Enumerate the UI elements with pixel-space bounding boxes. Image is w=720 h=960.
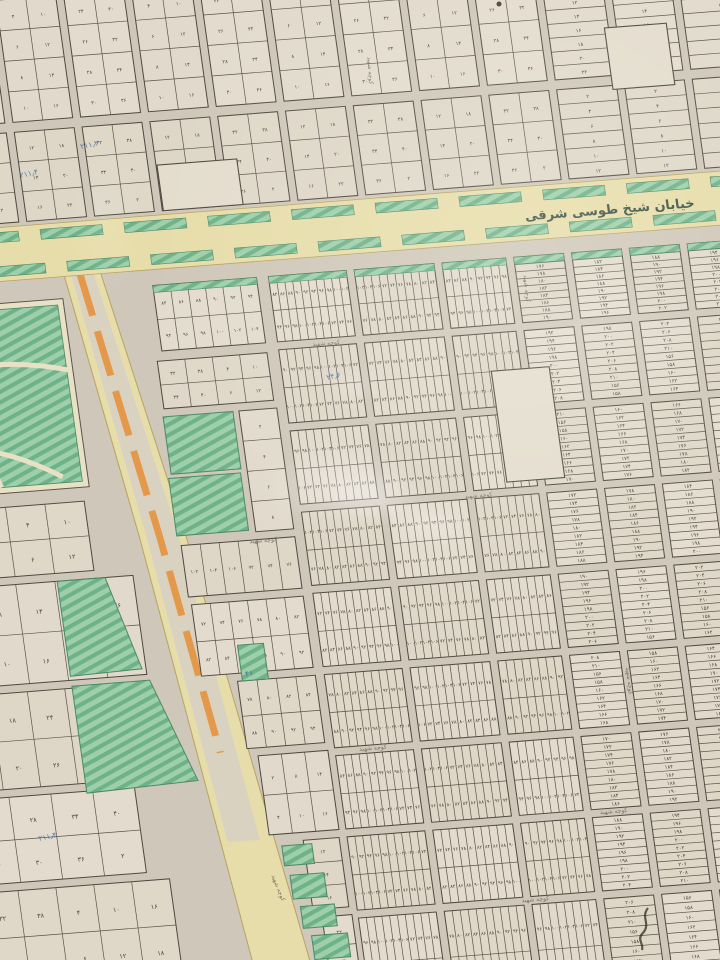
parcel-number: ۱۹۰ xyxy=(687,508,696,515)
parcel-number: ۱۶۲ xyxy=(687,925,696,932)
parcel-number: ۹۰ xyxy=(540,549,546,554)
parcel-number: ۱۸۲ xyxy=(681,467,690,474)
parcel-number: ۹۰ xyxy=(486,800,492,805)
parcel-number: ۱۲ xyxy=(663,163,670,169)
parcel-number: ۱۰۶ xyxy=(373,285,382,291)
parcel-number: ۱۹۰ xyxy=(632,537,641,544)
parcel-number: ۱۷۸ xyxy=(679,451,688,458)
parcel-number: ۸۰ xyxy=(469,846,475,851)
parcel-number: ۹۰ xyxy=(497,931,503,936)
parcel-number: ۱۸۰ xyxy=(680,459,689,466)
parcel-number: ۲۱۰ xyxy=(699,597,708,604)
city-block: ۳۲۳۴۳۶۳۸۴۰۲ xyxy=(353,101,425,195)
parcel-number: ۱۹۶ xyxy=(672,821,681,828)
parcel-number: ۱۰۰ xyxy=(513,880,521,886)
parcel-number: ۲۰۴ xyxy=(714,286,720,293)
parcel-number: ۲۰ xyxy=(63,173,69,179)
parcel-number: ۲۰۰ xyxy=(693,549,702,556)
parcel-number: ۸۰ xyxy=(388,442,394,447)
parcel-number: ۹۰ xyxy=(213,297,219,302)
parcel-number: ۱۰۶ xyxy=(401,938,410,944)
parcel-number: ۹۰ xyxy=(550,676,556,681)
city-block: ۱۰۲۷۶۱۰۴۷۸۱۰۶۸۰۷۲۸۲۷۴۸۴۷۶۸۶۷۸۸۸۸۰۹۰۸۲۹۲۸… xyxy=(301,506,389,585)
parcel-number: ۲۰۸ xyxy=(698,589,707,596)
parcel-number: ۱۹۶ xyxy=(690,532,699,539)
parcel-number: ۲۰۲ xyxy=(713,279,720,286)
empty-parcel xyxy=(157,159,243,211)
parcel-number: ۱۷۲ xyxy=(603,744,612,751)
parcel-number: ۱۰۲ xyxy=(233,327,242,334)
parcel-number: ۱۷۰ xyxy=(620,448,629,455)
parcel-number: ۱۰ xyxy=(40,12,46,18)
parcel-number: ۹۰ xyxy=(527,632,533,637)
parcel-number: ۲۰ xyxy=(334,151,340,157)
parcel-number: ۲۰۰ xyxy=(675,837,684,844)
parcel-number: ۱۷۸ xyxy=(537,271,546,278)
city-block: ۸۴۹۴۸۶۹۶۸۸۹۸۹۰۱۰۰۹۲۱۰۲۹۴۱۰۴۹۶۱۰۶۹۸۷۲ xyxy=(442,258,515,328)
parcel-number: ۱۷۰ xyxy=(674,419,683,426)
parcel-number: ۱۰ xyxy=(430,74,436,80)
city-block: ۷۸۸۸۸۰۹۰۸۲۹۲۸۴۹۴۸۶۹۶۸۸۹۸۹۰۱۰۰۹۲۱۰۲۹۴۱۰۴۹… xyxy=(324,668,412,747)
parcel-number: ۱۶ xyxy=(150,903,158,911)
parcel-number: ۸۰ xyxy=(535,513,541,518)
parcel-number: ۱۷۸ xyxy=(607,769,616,776)
parcel-number: ۸۰ xyxy=(447,803,453,808)
parcel-number: ۲۰۴ xyxy=(677,853,686,860)
parcel-number: ۱۵۶ xyxy=(646,634,655,641)
city-block: ۷۲۸۲۷۴۸۴۷۶۸۶۷۸۸۸۸۰۹۰۸۲۹۲۸۴۹۴۸۶۹۶ xyxy=(486,575,560,653)
parcel-number: ۱۶۸ xyxy=(654,691,663,698)
city-block: ۹۰۱۰۰۹۲۱۰۲۹۴۱۰۴۹۶۱۰۶۹۸۷۲۱۰۰۷۴۱۰۲۷۶۱۰۴۷۸۱… xyxy=(347,831,435,910)
parcel-number: ۹۰ xyxy=(418,314,424,319)
parcel-number: ۱۰۶ xyxy=(565,793,574,799)
parcel-number: ۱۹۶ xyxy=(618,850,627,857)
parcel-number: ۹۰ xyxy=(537,759,543,764)
parcel-number: ۱۶۶ xyxy=(563,460,572,467)
parcel-number: ۲۱۰ xyxy=(664,346,673,353)
parcel-number: ۲۰۸ xyxy=(644,618,653,625)
parcel-number: ۱۷۴ xyxy=(604,752,613,759)
parcel-number: ۱۶۰ xyxy=(632,949,641,956)
parcel-number: ۲۰۸ xyxy=(663,337,672,344)
parcel-number: ۱۰ xyxy=(63,518,71,526)
parcel-number: ۱۰۶ xyxy=(418,723,427,729)
parcel-number: ۱۸۲ xyxy=(609,785,618,792)
parcel-number: ۱۹۴ xyxy=(654,276,663,283)
parcel-number: ۱۶۶ xyxy=(672,402,681,409)
parcel-number: ۱۹۲ xyxy=(580,582,589,589)
parcel-number: ۱۸۴ xyxy=(594,266,603,273)
city-block: ۸۴۹۴۸۶۹۶۸۸۹۸۹۰۱۰۰۹۲۱۰۲۹۴۱۰۴۹۶۱۰۶۹۸۷۲۱۰۰۷… xyxy=(268,270,355,341)
parcel-number: ۱۸۶ xyxy=(541,300,550,307)
parcel-number: ۱۹۶ xyxy=(547,347,556,354)
parcel-number: ۲۰۴ xyxy=(642,602,651,609)
parcel-number: ۱۸۸ xyxy=(686,500,695,507)
parcel-number: ۹۰ xyxy=(353,646,359,651)
parcel-number: ۱۸۲ xyxy=(628,504,637,511)
parcel-number: ۱۰ xyxy=(23,105,29,111)
parcel-number: ۱۷۰ xyxy=(710,670,719,677)
parcel-number: ۱۵۸ xyxy=(684,905,693,912)
parcel-number: ۴۰ xyxy=(402,146,408,152)
parcel-number: ۱۹۴ xyxy=(689,524,698,531)
parcel-number: ۱۵۸ xyxy=(702,614,711,621)
parcel-number: ۱۰۶ xyxy=(378,890,387,896)
city-block: ۱۵۸۱۶۰۱۶۲۱۶۴۱۶۶۱۶۸۱۷۰۱۷۲۱۷۴ xyxy=(627,647,687,724)
parcel-number: ۲۰۲ xyxy=(551,371,560,378)
parcel-number: ۱۹۴ xyxy=(581,590,590,597)
parcel-number: ۱۶۴ xyxy=(616,423,625,430)
parcel-number: ۱۷۶ xyxy=(623,472,632,479)
city-block: ۱۸۶۱۸۸۱۹۰۱۹۲۱۹۴۱۹۶۱۹۸۲۰۰۲۰۲ xyxy=(629,244,688,313)
parcel-number: ۲۰۲ xyxy=(658,305,667,312)
parcel-number: ۱۰۴ xyxy=(579,837,588,843)
city-block: ۱۵۶۱۵۸۱۶۰۱۶۲۱۶۴۱۶۶۱۶۸۱۷۰۱۷۲ xyxy=(662,890,720,960)
parcel-number: ۲۰۰ xyxy=(585,614,594,621)
parcel-number: ۱۸۴ xyxy=(540,293,549,300)
parcel-number: ۲۱۰ xyxy=(680,878,689,885)
parcel-number: ۱۸۰ xyxy=(662,748,671,755)
parcel-number: ۹۰ xyxy=(470,277,476,282)
parcel-number: ۱۹۸ xyxy=(638,577,647,584)
parcel-number: ۲۰۲ xyxy=(640,594,649,601)
parcel-number: ۱۸۸ xyxy=(577,558,586,565)
parcel-number: ۱۶۸ xyxy=(673,410,682,417)
parcel-number: ۱۰۶ xyxy=(453,683,462,689)
parcel-number: ۱۸۰ xyxy=(627,496,636,503)
parcel-number: ۱۹۲ xyxy=(545,330,554,337)
parcel-number: ۱۷۲ xyxy=(621,456,630,463)
parcel-number: ۱۰ xyxy=(593,153,599,159)
parcel-number: ۱۰۶ xyxy=(497,308,506,314)
parcel-number: ۲۰ xyxy=(579,56,585,62)
map-svg: خیابان شیخ طوسی شرقی۲۴۶۸۱۰۸۱۰۱۲۱۴۱۶۱۴۱۶۱… xyxy=(0,0,720,960)
parcel-number: ۱۷۰ xyxy=(655,699,664,706)
parcel-number: ۱۸۴ xyxy=(610,793,619,800)
parcel-number: ۱۹۲ xyxy=(634,545,643,552)
city-block: ۷۸۸۸۸۰۹۰۸۲۹۲۸۴۹۴۸۶۹۶۸۸۹۸۹۰۱۰۰۹۲۱۰۲۹۴۱۰۴۹… xyxy=(444,905,536,960)
parcel-number: ۱۶۴ xyxy=(597,704,606,711)
parcel-number: ۱۰۶ xyxy=(228,567,237,573)
city-block: ۹۰۱۰۰۹۲۱۰۲۹۴۱۰۴۹۶۱۰۶۹۸۷۲۱۰۰۷۴۱۰۲۷۶۱۰۴۷۸۱… xyxy=(279,344,367,423)
parcel-number: ۱۹۸ xyxy=(711,265,720,272)
parcel-number: ۲۱۰ xyxy=(592,663,601,670)
parcel-number: ۱۰۰ xyxy=(216,330,224,336)
parcel-number: ۲۰۴ xyxy=(696,573,705,580)
parcel-number: ۱۸۶ xyxy=(595,274,604,281)
city-block: ۲۴۶۸۱۰۱۲ xyxy=(557,85,629,179)
parcel-number: ۱۶۶ xyxy=(653,683,662,690)
city-block: ۱۹۰۱۹۲۱۹۴۱۹۶۱۹۸۲۰۰۲۰۲۲۰۴۲۰۶ xyxy=(558,570,618,647)
parcel-number: ۱۰۶ xyxy=(310,403,319,409)
parcel-number: ۱۰۶ xyxy=(443,557,452,563)
parcel-number: ۱۷۲ xyxy=(711,678,720,685)
parcel-number: ۱۷۴ xyxy=(622,464,631,471)
parcel-number: ۹۰ xyxy=(387,606,393,611)
parcel-number: ۸۰ xyxy=(418,887,424,892)
parcel-number: ۸۰ xyxy=(400,359,406,364)
parcel-number: ۸۰ xyxy=(481,763,487,768)
city-block: ۱۶۰۱۶۲۱۶۴۱۶۶۱۶۸۱۷۰۱۷۲۱۷۴۱۷۶ xyxy=(593,403,653,480)
parcel-number: ۱۹۴ xyxy=(671,813,680,820)
parcel-number: ۱۰۶ xyxy=(332,446,341,452)
parcel-number: ۱۹۰ xyxy=(614,825,623,832)
parcel-number: ۸۰ xyxy=(414,282,420,287)
parcel-number: ۱۷۸ xyxy=(661,740,670,747)
parcel-number: ۱۰ xyxy=(3,660,11,668)
parcel-number: ۱۹۸ xyxy=(691,541,700,548)
parcel-number: ۱۰۶ xyxy=(412,850,421,856)
parcel-number: ۲۰۶ xyxy=(588,639,597,646)
parcel-number: ۱۷۸ xyxy=(571,517,580,524)
parcel-number: ۱۸۶ xyxy=(685,492,694,499)
parcel-number: ۸۰ xyxy=(275,617,281,622)
parcel-number: ۱۴ xyxy=(573,14,580,20)
city-block: ۸۴۹۴۸۶۹۶۸۸۹۸۹۰۱۰۰۹۲۱۰۲۹۴۱۰۴ xyxy=(153,277,266,350)
parcel-number: ۱۸ xyxy=(577,42,584,48)
parcel-number: ۱۹۰ xyxy=(668,789,677,796)
parcel-number: ۱۵۸ xyxy=(612,391,621,398)
parcel-number: ۳۰ xyxy=(108,6,114,12)
city-block: ۱۲۱۴۱۶۱۸۲۰۲۲ xyxy=(285,106,357,200)
parcel-number: ۱۷۴ xyxy=(677,435,686,442)
parcel-number: ۹۰ xyxy=(515,715,521,720)
parcel-number: ۱۸۸ xyxy=(613,817,622,824)
parcel-number: ۱۲ xyxy=(595,168,602,174)
parcel-number: ۲۰۶ xyxy=(643,610,652,617)
parcel-number: ۲۰۰ xyxy=(657,298,666,305)
parcel-number: ۹۰ xyxy=(509,843,515,848)
parcel-number: ۸۰ xyxy=(336,692,342,697)
city-block: ۱۸۸۱۹۰۱۹۲۱۹۴۱۹۶۱۹۸۲۰۰۲۰۲۲۰۴ xyxy=(592,814,652,891)
green-parcel xyxy=(282,844,315,866)
parcel-number: ۲۰۶ xyxy=(697,581,706,588)
green-parcel xyxy=(169,473,249,536)
parcel-number: ۱۶۸ xyxy=(691,954,700,960)
parcel-number: ۲۰۶ xyxy=(662,329,671,336)
parcel-number: ۱۶۸ xyxy=(564,468,573,475)
parcel-number: ۱۰۶ xyxy=(320,529,329,535)
parcel-number: ۱۰۶ xyxy=(322,322,331,328)
parcel-number: ۱۹۴ xyxy=(709,250,718,257)
parcel-number: ۱۰۰ xyxy=(391,643,399,649)
parcel-number: ۲۰۸ xyxy=(591,655,600,662)
parcel-number: ۲۰۴ xyxy=(552,379,561,386)
map-photo: خیابان شیخ طوسی شرقی۲۴۶۸۱۰۸۱۰۱۲۱۴۱۶۱۴۱۶۱… xyxy=(0,0,720,960)
parcel-number: ۹۰ xyxy=(375,689,381,694)
green-parcel xyxy=(290,873,327,899)
parcel-number: ۱۶۲ xyxy=(704,630,713,637)
parcel-number: ۱۶۶ xyxy=(707,654,716,661)
parcel-number: ۲۱۰ xyxy=(556,411,565,418)
city-block: ۱۰۲۷۶۱۰۴۷۸۱۰۶۸۰۷۲۸۲۷۴۸۴۷۶۸۶۷۸۸۸۸۰۹۰ xyxy=(475,494,549,572)
parcel-number: ۱۶۲ xyxy=(561,444,570,451)
parcel-number: ۱۰۴ xyxy=(251,327,260,333)
parcel-number: ۱۶۰ xyxy=(667,370,676,377)
parcel-number: ۴۰ xyxy=(266,157,272,163)
parcel-number: ۱۷۶ xyxy=(660,732,669,739)
parcel-number: ۱۷۸ xyxy=(714,703,720,710)
parcel-number: ۱۷۴ xyxy=(569,501,578,508)
city-block: ۸۴۹۴۸۶۹۶۸۸۹۸۹۰۱۰۰۹۲۱۰۲۹۴۱۰۴۹۶۱۰۶۹۸۷۲۱۰۰۷… xyxy=(336,750,424,829)
parcel-number: ۳۶ xyxy=(77,855,85,863)
parcel-number: ۱۵۶ xyxy=(629,929,638,936)
parcel-number: ۳۰ xyxy=(498,68,504,74)
parcel-number: ۱۵۸ xyxy=(559,428,568,435)
city-block: ۱۹۸۲۰۰۲۰۲۲۰۴۲۰۶۲۰۸۲۱۰۱۵۶۱۵۸ xyxy=(582,322,642,399)
parcel-number: ۹۰ xyxy=(393,479,399,484)
parcel-number: ۱۰۰ xyxy=(444,393,452,399)
parcel-number: ۱۰ xyxy=(159,95,165,101)
parcel-number: ۹۰ xyxy=(525,842,531,847)
parcel-number: ۱۸۴ xyxy=(575,541,584,548)
parcel-number: ۱۰۶ xyxy=(456,474,465,480)
parcel-number: ۲۰۴ xyxy=(661,321,670,328)
parcel-number: ۱۹۲ xyxy=(616,834,625,841)
parcel-number: ۱۶۰ xyxy=(650,659,659,666)
parcel-number: ۱۰۶ xyxy=(465,600,474,606)
city-block: ۱۹۶۱۹۸۲۰۰۲۰۲۲۰۴۲۰۶۲۰۸۲۱۰۱۵۶ xyxy=(616,566,676,643)
city-block: ۹۶۱۰۶۹۸۷۲۱۰۰۷۴۱۰۲۷۶۱۰۴۷۸۱۰۶۸۰۷۲۸۲۷۴۸۴۷۶۸… xyxy=(290,425,378,504)
parcel-number: ۱۹۲ xyxy=(653,269,662,276)
parcel-number: ۱۷۶ xyxy=(678,443,687,450)
parcel-number: ۲۰۰ xyxy=(712,272,720,279)
parcel-number: ۹۰ xyxy=(440,356,446,361)
city-block: ۱۲۱۴۱۶۱۸۲۰۲۲ xyxy=(421,96,493,190)
parcel-number: ۹۰ xyxy=(283,368,289,373)
parcel-number: ۱۶۲ xyxy=(596,696,605,703)
parcel-number: ۱۶۰ xyxy=(560,436,569,443)
parcel-number: ۸۰ xyxy=(348,609,354,614)
parcel-number: ۱۵۶ xyxy=(593,671,602,678)
parcel-number: ۱۹۶ xyxy=(601,310,610,317)
parcel-number: ۲۴ xyxy=(214,0,220,4)
city-block: ۸۴۹۴۸۶۹۶۸۸۹۸۹۰۱۰۰۹۲۱۰۲۹۴۱۰۴۹۶۱۰۶۹۸۷۲ xyxy=(509,737,583,815)
parcel-number: ۱۰۶ xyxy=(390,807,399,813)
city-block: ۲۲۲۴۲۸۳۰۳۴۳۶۴۰۲ xyxy=(0,787,146,885)
parcel-number: ۱۰۶ xyxy=(402,724,411,730)
parcel-number: ۹۰ xyxy=(474,883,480,888)
city-block: ۷۸۸۸۸۰۹۰۸۲۹۲۸۴۹۴۸۶۹۶۸۸۹۸۹۰۱۰۰۹۲۱۰۲۹۴۱۰۴۹… xyxy=(376,418,466,498)
city-block: ۱۰۲۷۶۱۰۴۷۸۱۰۶۸۰۷۲۸۲۷۴۸۴۷۶۸۶۷۸۸۸۸۰۹۰۸۲۹۲۸… xyxy=(421,743,511,823)
parcel-number: ۱۹۴ xyxy=(617,842,626,849)
city-block: ۱۰۲۷۶۱۰۴۷۸۱۰۶۸۰۷۲۸۲۷۴۸۴۷۶۸۶۷۸۸۸۸۰۹۰۸۲۹۲۸… xyxy=(354,264,443,336)
city-block: ۹۶۱۰۶۹۸۷۲۱۰۰۷۴۱۰۲۷۶۱۰۴۷۸۱۰۶۸۰۷۲۸۲۷۴۸۴۷۶۸… xyxy=(358,912,448,960)
parcel-number: ۱۷۴ xyxy=(712,687,720,694)
city-block: ۳۲۳۴۳۶۳۸۴۰۲ xyxy=(489,90,561,184)
city-block: ۹۰۱۰۰۹۲۱۰۲۹۴۱۰۴۹۶۱۰۶۹۸۷۲۱۰۰۷۴۱۰۲۷۶۱۰۴۷۸۱… xyxy=(399,580,489,660)
parcel-number: ۲۰۶ xyxy=(678,862,687,869)
parcel-number: ۹۰ xyxy=(271,730,277,735)
parcel-number: ۱۸۰ xyxy=(715,711,720,718)
parcel-number: ۴۰ xyxy=(537,136,543,142)
parcel-number: ۱۹۴ xyxy=(600,303,609,310)
parcel-number: ۱۸۶ xyxy=(630,521,639,528)
parcel-number: ۱۸۸ xyxy=(542,307,551,314)
parcel-number: ۱۶۶ xyxy=(690,944,699,951)
parcel-number: ۴۰ xyxy=(130,167,136,173)
parcel-number: ۱۰۲ xyxy=(408,768,417,775)
parcel-number: ۱۸۸ xyxy=(651,255,660,262)
parcel-number: ۱۶۰ xyxy=(614,407,623,414)
parcel-number: ۱۶۴ xyxy=(670,386,679,393)
parcel-number: ۱۶۸ xyxy=(600,720,609,727)
parcel-number: ۹۰ xyxy=(351,855,357,860)
parcel-number: ۱۸۴ xyxy=(629,512,638,519)
parcel-number: ۱۷۰ xyxy=(602,736,611,743)
parcel-number: ۱۶۰ xyxy=(685,915,694,922)
parcel-number: ۱۸۰ xyxy=(538,278,547,285)
city-block: ۳۲۳۴۳۶۳۸۴۰۲ xyxy=(82,122,154,216)
parcel-number: ۱۶۶ xyxy=(618,431,627,438)
parcel-number: ۱۰ xyxy=(176,1,182,7)
parcel-number: ۲۰۸ xyxy=(554,395,563,402)
city-block: ۹۶۱۰۶۹۸۷۲۱۰۰۷۴۱۰۲۷۶۱۰۴۷۸۱۰۶۸۰۷۲۸۲۷۴۸۴ xyxy=(532,900,608,960)
parcel-number: ۱۰۶ xyxy=(471,472,480,478)
parcel-number: ۹۰ xyxy=(428,439,434,444)
parcel-number: ۸۰ xyxy=(522,596,528,601)
parcel-number: ۱۰۴ xyxy=(511,350,520,356)
parcel-number: ۸۰ xyxy=(500,552,506,557)
parcel-number: ۲۰۴ xyxy=(606,350,615,357)
parcel-number: ۱۸۰ xyxy=(572,525,581,532)
parcel-number: ۱۰۶ xyxy=(575,924,584,930)
city-block: ۱۷۰۱۷۲۱۷۴۱۷۶۱۷۸۱۸۰۱۸۲۱۸۴۱۸۶ xyxy=(581,733,641,810)
parcel-number: ۲۰۰ xyxy=(639,586,648,593)
parcel-number: ۱۹۰ xyxy=(543,314,552,321)
parcel-number: ۱۰۲ xyxy=(561,711,570,718)
parcel-number: ۱۵۶ xyxy=(701,605,710,612)
parcel-number: ۸۰ xyxy=(350,400,356,405)
parcel-number: ۱۹۲ xyxy=(688,516,697,523)
parcel-number: ۱۷۸ xyxy=(626,488,635,495)
parcel-number: ۳۰ xyxy=(35,858,43,866)
parcel-number: ۱۶۲ xyxy=(651,667,660,674)
parcel-number: ۹۰ xyxy=(280,652,286,657)
parcel-number: ۱۰ xyxy=(294,84,300,90)
parcel-number: ۹۰ xyxy=(456,355,462,360)
parcel-number: ۸۰ xyxy=(326,566,332,571)
parcel-number: ۹۰ xyxy=(403,605,409,610)
parcel-number: ۲۰۰ xyxy=(620,866,629,873)
parcel-number: ۸۰ xyxy=(338,483,344,488)
parcel-number: ۱۹۰ xyxy=(652,262,661,269)
parcel-number: ۲۰۴ xyxy=(622,882,631,889)
parcel-number: ۱۶۲ xyxy=(669,378,678,385)
city-block: ۱۰۲۱۰۴۱۰۶۷۲۷۴۷۶ xyxy=(181,537,302,597)
city-block: ۱۸۰۱۸۲۱۸۴۱۸۶۱۸۸۱۹۰۱۹۲۱۹۴۱۹۶ xyxy=(571,249,630,318)
city-block: ۱۸۴۱۸۶۱۸۸۱۹۰۱۹۲۱۹۴۱۹۶۱۹۸۲۰۰ xyxy=(662,480,720,557)
city-block: ۳۲۳۴۳۸۴۰۴۶۱۰۱۲ xyxy=(0,501,94,583)
parcel-number: ۱۰ xyxy=(299,813,305,819)
city-block: ۸۴۹۴۸۶۹۶۸۸۹۸۹۰۱۰۰۹۲۱۰۲۹۴۱۰۴۹۶۱۰۶۹۸۷۲۱۰۰۷… xyxy=(387,499,477,579)
city-block: ۷۸۸۸۸۰۹۰۸۲۹۲۸۴۹۴۸۶۹۶۸۸۹۸۹۰۱۰۰۹۲۱۰۲ xyxy=(498,656,572,734)
parcel-number: ۱۷۶ xyxy=(713,695,720,702)
block-outline xyxy=(0,787,146,885)
parcel-number: ۲۰۶ xyxy=(715,294,720,301)
city-block: ۳۲۳۴۳۶۳۸۴۰۲۴۶۸۱۰۱۲۱۴۱۶۱۸۲۰ xyxy=(0,879,189,960)
city-block: ۱۷۲۱۷۴۱۷۶۱۷۸۱۸۰۱۸۲۱۸۴۱۸۶۱۸۸ xyxy=(547,489,607,566)
parcel-number: ۱۹۲ xyxy=(599,295,608,302)
parcel-number: ۲۰۴ xyxy=(587,631,596,638)
parcel-number: ۱۰ xyxy=(112,906,120,914)
parcel-number: ۱۴ xyxy=(641,9,648,15)
parcel-number: ۱۷۲ xyxy=(568,493,577,500)
green-parcel xyxy=(163,411,241,474)
parcel-number: ۳۰ xyxy=(226,90,232,96)
city-block: ۱۷۸۱۸۰۱۸۲۱۸۴۱۸۶۱۸۸۱۹۰۱۹۲۱۹۴ xyxy=(605,485,665,562)
parcel-number: ۸۰ xyxy=(472,637,478,642)
